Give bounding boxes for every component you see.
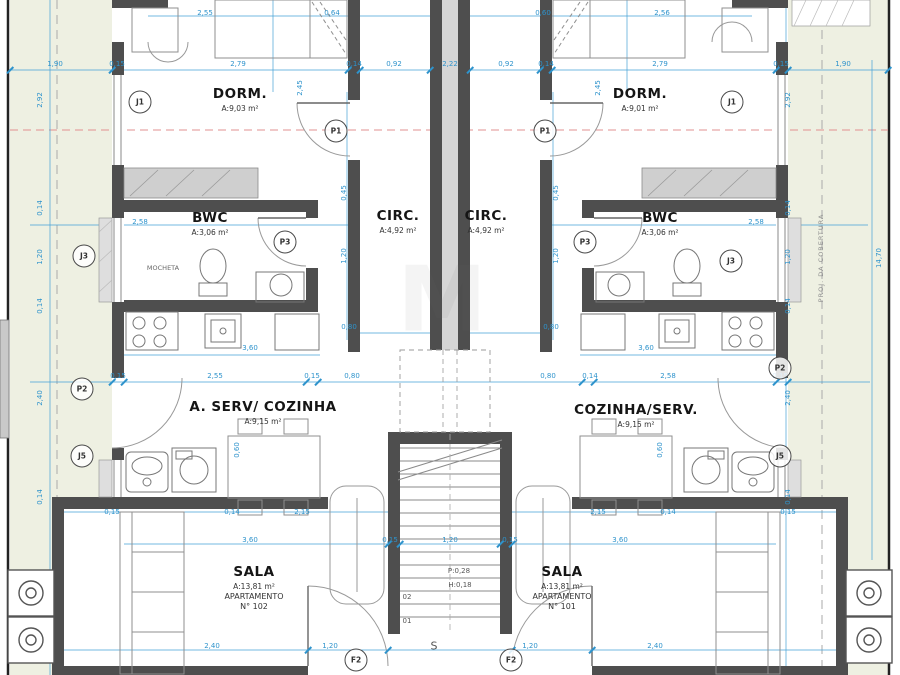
- room-area: A:9,01 m²: [613, 104, 667, 113]
- dimension-label: 0,14: [784, 298, 792, 314]
- room-sala-right: SALA A:13,81 m² APARTAMENTO N° 101: [532, 564, 591, 611]
- annotation-text: PROJ. DA COBERTURA: [817, 214, 825, 303]
- annotation-text: S: [431, 640, 438, 653]
- room-bwc-left: BWC A:3,06 m²: [192, 210, 229, 237]
- dimension-label: 0,60: [233, 442, 241, 458]
- dimension-label: 3,60: [242, 344, 258, 352]
- bubble-j3-right: J3: [720, 250, 743, 273]
- room-serv-left: A. SERV/ COZINHA A:9,15 m²: [189, 399, 336, 426]
- dimension-label: 3,60: [242, 536, 258, 544]
- room-area: A:9,15 m²: [574, 420, 698, 429]
- dimension-label: 0,64: [324, 9, 340, 17]
- bubble-p2-left: P2: [71, 378, 94, 401]
- room-name: DORM.: [213, 86, 267, 102]
- dimension-label: 2,79: [230, 60, 246, 68]
- dimension-label: 2,58: [132, 218, 148, 226]
- dimension-label: 2,40: [36, 390, 44, 406]
- dimension-label: 0,14: [36, 200, 44, 216]
- bubble-j1-left: J1: [129, 91, 152, 114]
- bubble-f2-right: F2: [500, 649, 523, 672]
- room-serv-right: COZINHA/SERV. A:9,15 m²: [574, 402, 698, 429]
- room-number: N° 101: [532, 602, 591, 611]
- dimension-label: 0,60: [535, 9, 551, 17]
- annotation-text: MOCHETA: [147, 264, 179, 272]
- dimension-label: 1,20: [442, 536, 458, 544]
- dimension-label: 2,40: [784, 390, 792, 406]
- room-sala-left: SALA A:13,81 m² APARTAMENTO N° 102: [224, 564, 283, 611]
- dimension-label: 14,70: [875, 248, 883, 268]
- room-area: A:13,81 m²: [532, 582, 591, 591]
- dimension-label: 3,60: [638, 344, 654, 352]
- dimension-label: 1,20: [340, 248, 348, 264]
- room-name: SALA: [532, 564, 591, 580]
- dimension-label: 0,80: [543, 323, 559, 331]
- dimension-label: 1,20: [522, 642, 538, 650]
- room-name: BWC: [642, 210, 679, 226]
- bubble-p1-right: P1: [534, 120, 557, 143]
- dimension-label: 0,45: [340, 185, 348, 201]
- room-area: A:4,92 m²: [377, 226, 420, 235]
- room-area: A:9,15 m²: [189, 417, 336, 426]
- dimension-label: 2,58: [660, 372, 676, 380]
- room-area: A:4,92 m²: [465, 226, 508, 235]
- bubble-p1-left: P1: [325, 120, 348, 143]
- dimension-label: 0,14: [660, 508, 676, 516]
- dimension-label: 2,15: [590, 508, 606, 516]
- dimension-label: 0,15: [104, 508, 120, 516]
- dimension-label: 0,14: [36, 298, 44, 314]
- room-name: BWC: [192, 210, 229, 226]
- dimension-label: 2,79: [652, 60, 668, 68]
- room-name: DORM.: [613, 86, 667, 102]
- dimension-label: 1,20: [784, 249, 792, 265]
- dimension-label: 0,15: [773, 60, 789, 68]
- dimension-label: 2,22: [442, 60, 458, 68]
- room-name: A. SERV/ COZINHA: [189, 399, 336, 415]
- room-area: A:3,06 m²: [642, 228, 679, 237]
- room-number: N° 102: [224, 602, 283, 611]
- room-name: CIRC.: [377, 208, 420, 224]
- dimension-label: 2,92: [36, 92, 44, 108]
- dimension-label: 1,20: [322, 642, 338, 650]
- floor-plan-canvas: 2,550,640,602,561,900,152,790,140,922,22…: [0, 0, 900, 675]
- dimension-label: 2,55: [197, 9, 213, 17]
- bubble-j1-right: J1: [721, 91, 744, 114]
- dimension-label: 0,15: [780, 508, 796, 516]
- dimension-label: 0,92: [498, 60, 514, 68]
- dimension-label: 0,14: [784, 200, 792, 216]
- dimension-label: 2,58: [748, 218, 764, 226]
- dimension-label: 0,14: [224, 508, 240, 516]
- annotation-text: H:0,18: [448, 581, 471, 589]
- room-area: A:9,03 m²: [213, 104, 267, 113]
- dimension-label: 1,90: [835, 60, 851, 68]
- bubble-p2-right: P2: [769, 357, 792, 380]
- dimension-label: 0,80: [344, 372, 360, 380]
- dimension-label: 2,40: [204, 642, 220, 650]
- annotation-text: P:0,28: [448, 567, 470, 575]
- dimension-label: 0,14: [784, 489, 792, 505]
- dimension-label: 0,15: [502, 536, 518, 544]
- bubble-j3-left: J3: [73, 245, 96, 268]
- dimension-label: 1,20: [36, 249, 44, 265]
- dimension-label: 0,92: [386, 60, 402, 68]
- dimension-label: 1,20: [552, 248, 560, 264]
- dimension-label: 2,45: [594, 80, 602, 96]
- room-name: SALA: [224, 564, 283, 580]
- dimension-label: 0,80: [341, 323, 357, 331]
- dimension-label: 2,55: [207, 372, 223, 380]
- dimension-label: 2,40: [647, 642, 663, 650]
- bubble-p3-right: P3: [574, 231, 597, 254]
- dimension-label: 3,60: [612, 536, 628, 544]
- room-area: A:3,06 m²: [192, 228, 229, 237]
- annotation-text: M: [397, 248, 487, 353]
- dimension-label: 2,56: [654, 9, 670, 17]
- dimension-label: 0,80: [540, 372, 556, 380]
- dimension-label: 0,45: [552, 185, 560, 201]
- dimension-label: 0,14: [36, 489, 44, 505]
- bubble-j5-left: J5: [71, 445, 94, 468]
- room-dorm-right: DORM. A:9,01 m²: [613, 86, 667, 113]
- room-bwc-right: BWC A:3,06 m²: [642, 210, 679, 237]
- room-circ-left: CIRC. A:4,92 m²: [377, 208, 420, 235]
- bubble-j5-right: J5: [769, 445, 792, 468]
- room-circ-right: CIRC. A:4,92 m²: [465, 208, 508, 235]
- bubble-f2-left: F2: [345, 649, 368, 672]
- dimension-label: 0,15: [109, 60, 125, 68]
- room-subtext: APARTAMENTO: [224, 592, 283, 601]
- dimension-label: 1,90: [47, 60, 63, 68]
- room-name: COZINHA/SERV.: [574, 402, 698, 418]
- dimension-label: 2,15: [294, 508, 310, 516]
- annotation-text: 01: [403, 617, 412, 625]
- room-area: A:13,81 m²: [224, 582, 283, 591]
- room-dorm-left: DORM. A:9,03 m²: [213, 86, 267, 113]
- room-name: CIRC.: [465, 208, 508, 224]
- room-subtext: APARTAMENTO: [532, 592, 591, 601]
- bubble-p3-left: P3: [274, 231, 297, 254]
- annotation-text: 02: [403, 593, 412, 601]
- dimension-label: 2,45: [296, 80, 304, 96]
- dimension-label: 0,60: [656, 442, 664, 458]
- dimension-label: 2,92: [784, 92, 792, 108]
